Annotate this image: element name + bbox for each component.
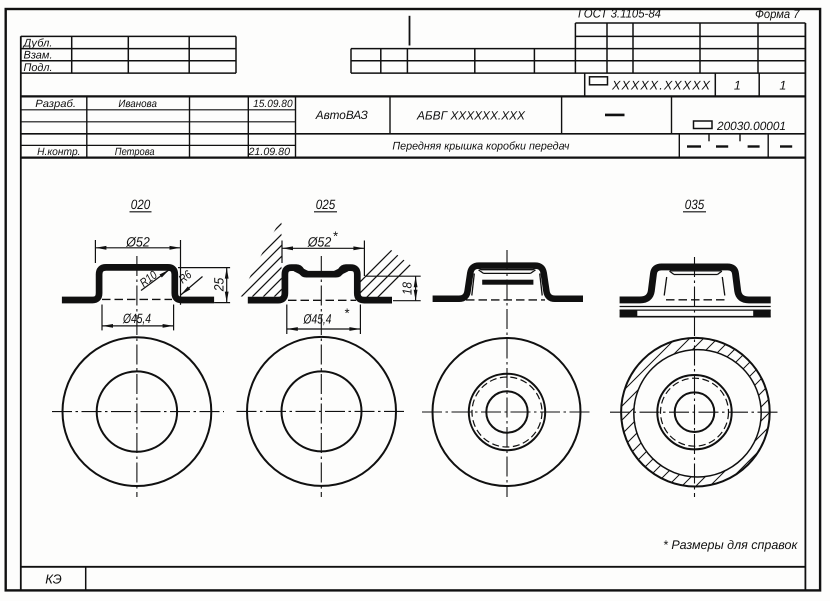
svg-text:025: 025 — [316, 197, 336, 212]
svg-text:Ø45,4: Ø45,4 — [303, 311, 332, 326]
svg-text:020: 020 — [131, 197, 151, 212]
svg-text:Подл.: Подл. — [24, 62, 53, 74]
svg-text:Ø45,4: Ø45,4 — [122, 311, 151, 326]
svg-text:1: 1 — [779, 79, 786, 93]
svg-text:Петрова: Петрова — [115, 146, 155, 158]
svg-text:035: 035 — [685, 197, 705, 212]
svg-text:18: 18 — [399, 281, 414, 295]
svg-text:Форма 7: Форма 7 — [755, 7, 801, 21]
svg-text:* Размеры для справок: * Размеры для справок — [663, 538, 799, 552]
svg-text:Передняя крышка коробки переда: Передняя крышка коробки передач — [392, 140, 569, 152]
svg-text:КЭ: КЭ — [45, 571, 62, 586]
svg-text:20030.00001: 20030.00001 — [716, 119, 786, 133]
svg-text:Дубл.: Дубл. — [21, 37, 52, 49]
svg-text:15.09.80: 15.09.80 — [253, 98, 293, 110]
svg-text:Взам.: Взам. — [24, 49, 53, 61]
svg-text:1: 1 — [734, 79, 741, 93]
svg-text:Ø52: Ø52 — [307, 234, 332, 249]
svg-text:Разраб.: Разраб. — [35, 98, 76, 110]
svg-text:25: 25 — [212, 277, 227, 292]
svg-text:ГОСТ 3.1105-84: ГОСТ 3.1105-84 — [578, 7, 661, 21]
svg-text:Ø52: Ø52 — [125, 234, 150, 249]
svg-text:Иванова: Иванова — [118, 98, 157, 110]
svg-text:Н.контр.: Н.контр. — [37, 146, 80, 158]
svg-text:21.09.80: 21.09.80 — [247, 146, 290, 158]
svg-text:АвтоВАЗ: АвтоВАЗ — [315, 108, 369, 122]
svg-text:АБВГ XXXXXX.XXX: АБВГ XXXXXX.XXX — [416, 108, 526, 122]
svg-text:XXXXX.XXXXX: XXXXX.XXXXX — [611, 79, 711, 93]
